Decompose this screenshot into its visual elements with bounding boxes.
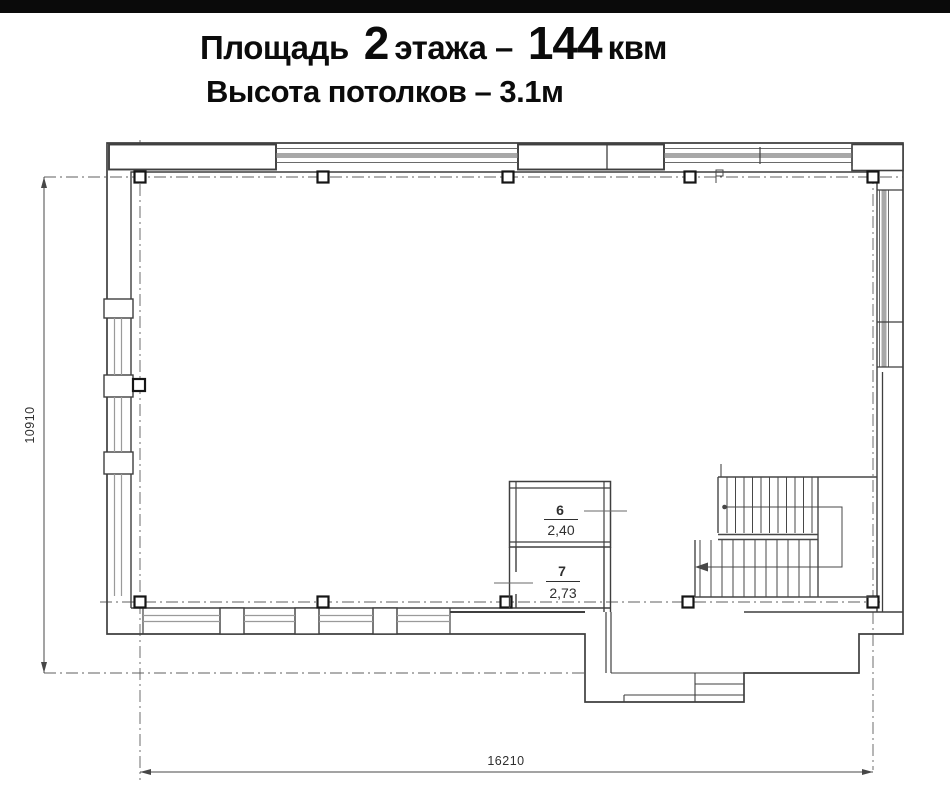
room-7-area: 2,73 — [549, 585, 576, 601]
room-6-area: 2,40 — [547, 522, 574, 538]
dimension-bottom: 16210 — [140, 754, 873, 775]
columns — [133, 172, 879, 608]
entry-steps — [606, 612, 744, 702]
dimension-height-label: 10910 — [23, 406, 37, 443]
right-window-band — [877, 190, 903, 612]
stair-direction-arrow — [695, 563, 708, 572]
walls — [104, 143, 903, 702]
staircase — [695, 170, 877, 597]
stair-treads-lower — [700, 540, 810, 597]
axis-lines — [44, 140, 903, 780]
page: { "title": { "p1": "Площадь", "p2": "2",… — [0, 0, 950, 788]
stair-walk-line — [695, 505, 842, 572]
floor-plan: 6 2,40 7 2,73 10910 — [0, 0, 950, 788]
room-7-number: 7 — [558, 563, 566, 579]
room-6: 6 2,40 — [510, 482, 628, 548]
stair-treads-upper — [727, 477, 812, 533]
dimension-width-label: 16210 — [487, 754, 524, 768]
dimension-left: 10910 — [23, 177, 47, 673]
left-wall-piers — [104, 299, 133, 474]
room-6-number: 6 — [556, 502, 564, 518]
